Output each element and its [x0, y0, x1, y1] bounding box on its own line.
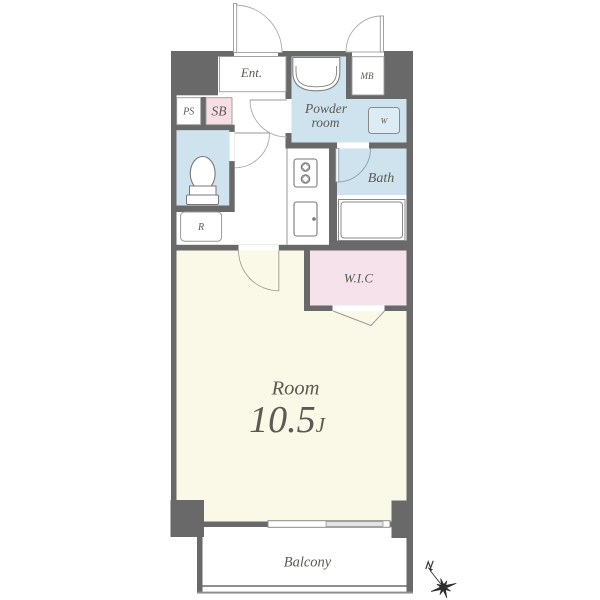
svg-text:Ent.: Ent.: [240, 65, 262, 80]
svg-text:W.I.C: W.I.C: [344, 271, 373, 286]
svg-text:R: R: [197, 222, 204, 233]
svg-text:Room: Room: [271, 378, 320, 400]
svg-text:Balcony: Balcony: [284, 555, 332, 571]
svg-text:SB: SB: [212, 104, 227, 119]
svg-text:10.5J: 10.5J: [249, 399, 327, 441]
svg-text:PS: PS: [182, 107, 194, 118]
svg-text:Bath: Bath: [368, 171, 394, 186]
svg-text:Powder: Powder: [304, 101, 348, 116]
svg-text:room: room: [311, 115, 339, 130]
svg-text:MB: MB: [360, 71, 374, 81]
